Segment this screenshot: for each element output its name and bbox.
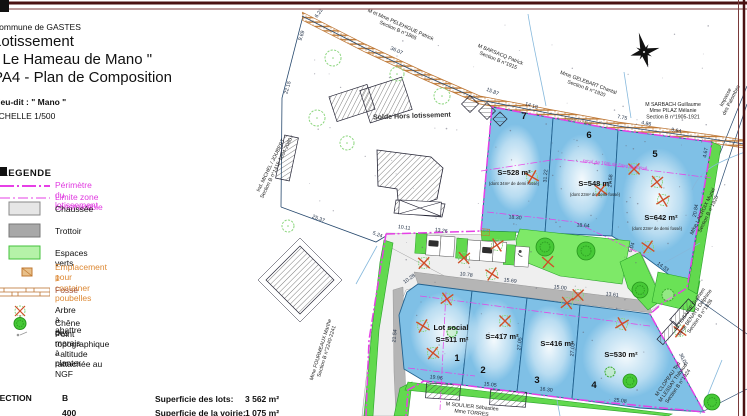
- topo-point: [626, 145, 627, 146]
- echelle-label: ECHELLE 1/500: [0, 111, 55, 121]
- topo-point: [590, 215, 591, 216]
- topo-point: [627, 221, 629, 223]
- lot-name: Lot social: [433, 323, 468, 332]
- topo-point: [314, 73, 315, 74]
- oak-to-plant-icon: [623, 374, 637, 388]
- container-swatch-icon: [0, 262, 50, 282]
- topo-point: [575, 286, 576, 287]
- topo-point: [716, 323, 717, 324]
- north-arrow-icon: [625, 29, 663, 72]
- section-label: SECTION: [0, 393, 32, 403]
- lot-number: 3: [534, 375, 539, 386]
- trash-container-spot: [481, 229, 489, 236]
- owner-label: Mme FOURMEAUX MartheSection B n°2240-224…: [309, 318, 339, 383]
- superficie-lots-value: 3 562 m²: [245, 394, 279, 404]
- topo-point: [396, 56, 397, 57]
- topo-point: [626, 212, 627, 213]
- terrace: [399, 200, 442, 216]
- topo-point: [314, 59, 315, 60]
- topo-point: [576, 160, 577, 161]
- topo-point: [622, 106, 623, 107]
- topo-point: [669, 348, 670, 349]
- oak-to-plant-icon: [577, 242, 595, 260]
- topo-point: [420, 301, 421, 302]
- topo-point: [473, 67, 474, 68]
- topo-point: [549, 218, 550, 219]
- topo-point: [495, 147, 496, 148]
- topo-point: [702, 139, 703, 140]
- topo-point: [530, 251, 532, 253]
- topo-point: [552, 44, 553, 45]
- topo-point: [405, 259, 406, 260]
- lot-number: 7: [521, 111, 526, 122]
- topo-point: [617, 238, 618, 239]
- lot-area: S=511 m²: [436, 335, 469, 344]
- topo-point: [597, 170, 598, 171]
- topo-point: [469, 267, 470, 268]
- superficie-voirie-value: 1 075 m²: [245, 408, 279, 416]
- topo-point: [458, 238, 459, 239]
- topo-point: [701, 192, 702, 193]
- lot-area: S=642 m²: [644, 213, 678, 222]
- topo-point: [558, 151, 559, 152]
- topo-point: [481, 313, 482, 314]
- lot-number: 5: [652, 149, 658, 160]
- solde-hors-lotissement-label: Solde Hors lotissement: [373, 112, 452, 122]
- topo-point: [536, 287, 537, 288]
- owner-label: M SARBACH GuillaumeMme PILAZ MélanieSect…: [645, 102, 701, 120]
- topo-point: [392, 63, 393, 64]
- topo-point: [478, 203, 479, 204]
- parked-car: [482, 247, 492, 254]
- topo-point: [624, 257, 625, 258]
- topo-point: [636, 389, 638, 391]
- point-topo-icon: [0, 329, 50, 341]
- topo-point: [601, 121, 602, 122]
- shrub-icon: [662, 289, 674, 301]
- legend-row-container: Emplacement pour 1 container poubelles: [0, 262, 50, 284]
- dimension-label: 7.75: [617, 114, 628, 122]
- lieu-dit-label: Lieu-dit : " Mano ": [0, 97, 66, 107]
- topo-point: [668, 339, 669, 340]
- topo-point: [317, 128, 318, 129]
- owner-label: M BARSACQ PatrickSection B n°1915: [474, 43, 524, 73]
- topo-point: [389, 77, 391, 79]
- topo-point: [705, 124, 706, 125]
- topo-point: [604, 400, 605, 401]
- topo-point: [422, 247, 424, 249]
- topo-point: [510, 130, 511, 131]
- topo-point: [552, 143, 553, 144]
- topo-point: [560, 166, 561, 167]
- topo-point: [662, 78, 663, 79]
- superficie-lots-label: Superficie des lots:: [155, 394, 233, 404]
- topo-point: [701, 141, 702, 142]
- topo-point: [677, 309, 679, 311]
- lot-area: S=417 m²: [485, 332, 519, 341]
- chaussee-swatch-icon: [0, 201, 50, 217]
- topo-point: [576, 140, 577, 141]
- topo-point: [637, 203, 639, 205]
- owner-label: M et Mme PELEHIGUE PatrickSection B n°18…: [364, 8, 435, 48]
- topo-point: [592, 340, 593, 341]
- legend-label: Point topographique - altitude rattachée…: [55, 329, 109, 379]
- topo-point: [402, 40, 404, 42]
- parked-car: [428, 240, 438, 247]
- oak-to-plant-icon: [536, 238, 554, 256]
- topo-point: [528, 201, 529, 202]
- topo-point: [365, 156, 366, 157]
- topo-point: [329, 127, 330, 128]
- lot-number: 1: [454, 353, 460, 364]
- topo-point: [686, 215, 687, 216]
- topo-point: [609, 399, 610, 400]
- lot-note: (dont 23m² de demi fossé): [632, 226, 683, 231]
- topo-point: [585, 287, 586, 288]
- topo-point: [476, 95, 477, 96]
- dimension-label: 18.64: [576, 223, 589, 230]
- topo-point: [702, 68, 703, 69]
- topo-point: [413, 188, 414, 189]
- topo-point: [416, 315, 417, 316]
- topo-point: [321, 25, 322, 26]
- topo-point: [438, 45, 439, 46]
- dimension-label: 31.22: [543, 169, 550, 182]
- topo-point: [724, 184, 725, 185]
- topo-point: [627, 74, 628, 75]
- lot-area: S=530 m²: [604, 350, 638, 359]
- topo-point: [636, 123, 637, 124]
- topo-point: [309, 183, 310, 184]
- legend-row-perimetre: Périmètre du lotissement: [0, 182, 50, 192]
- dimension-label: 36.07: [389, 46, 403, 57]
- topo-point: [552, 175, 554, 177]
- topo-point: [681, 145, 682, 146]
- topo-point: [647, 65, 648, 66]
- topo-point: [574, 139, 575, 140]
- commune-label: Commune de GASTES: [0, 22, 81, 32]
- topo-point: [630, 197, 631, 198]
- topo-point: [555, 222, 557, 224]
- topo-point: [602, 154, 603, 155]
- topo-point: [614, 109, 615, 110]
- topo-point: [519, 50, 520, 51]
- topo-point: [707, 25, 709, 27]
- topo-point: [624, 299, 625, 300]
- lot-area: S=416 m²: [540, 339, 574, 348]
- legend-row-fosse: Fossé: [0, 287, 50, 299]
- topo-point: [396, 173, 397, 174]
- lot-note: (dont 23m² de demi fossé): [570, 192, 621, 197]
- topo-point: [513, 223, 514, 224]
- topo-point: [505, 25, 506, 26]
- legend-label: Trottoir: [55, 226, 82, 236]
- topo-point: [435, 217, 436, 218]
- topo-point: [567, 103, 568, 104]
- legend-row-chaussee: Chaussée: [0, 201, 50, 219]
- topo-point: [583, 332, 585, 334]
- topo-point: [663, 187, 664, 188]
- main-house: [377, 150, 443, 206]
- topo-point: [572, 68, 573, 69]
- topo-point: [518, 323, 519, 324]
- legend-label: Chaussée: [55, 204, 93, 214]
- topo-point: [643, 352, 644, 353]
- trottoir-swatch-icon: [0, 223, 50, 239]
- oak-to-plant-icon: [704, 394, 720, 410]
- topo-point: [679, 186, 680, 187]
- perimetre-swatch-icon: [0, 182, 50, 190]
- topo-point: [561, 188, 562, 189]
- dimension-label: 22.15: [283, 81, 292, 95]
- lot-number: 4: [591, 380, 597, 391]
- dimension-label: 27.58: [608, 174, 615, 187]
- topo-point: [444, 353, 445, 354]
- title-line-1: Lotissement: [0, 33, 74, 50]
- topo-point: [545, 123, 547, 125]
- dimension-label: 25.37: [311, 214, 325, 224]
- dimension-label: 18.30: [508, 215, 521, 222]
- legend-title: LEGENDE: [2, 168, 51, 179]
- topo-point: [674, 34, 675, 35]
- shrub-icon: [605, 367, 615, 377]
- lot-area: S=528 m²: [497, 168, 531, 177]
- topo-point: [626, 201, 627, 202]
- legend-row-point-topo: Point topographique - altitude rattachée…: [0, 329, 50, 343]
- topo-point: [578, 146, 579, 147]
- topo-point: [596, 218, 597, 219]
- topo-point: [636, 119, 637, 120]
- topo-point: [319, 200, 320, 201]
- superficie-voirie-label: Superficie de la voirie:: [155, 408, 246, 416]
- topo-point: [616, 308, 618, 310]
- legend-label: Fossé: [55, 285, 78, 295]
- lot-number: 6: [586, 130, 591, 141]
- topo-point: [561, 152, 562, 153]
- topo-point: [333, 210, 334, 211]
- topo-point: [375, 175, 376, 176]
- topo-point: [391, 160, 392, 161]
- corner-mark: [0, 0, 9, 12]
- title-line-2: " Le Hameau de Mano ": [0, 51, 152, 68]
- topo-point: [633, 148, 635, 150]
- lot-number: 2: [480, 365, 485, 376]
- dimension-label: 15.87: [485, 87, 499, 97]
- lot-note: (dont 34m² de demi fossé): [489, 181, 540, 186]
- topo-point: [648, 64, 649, 65]
- topo-point: [701, 280, 702, 281]
- espaces-verts-swatch-icon: [0, 245, 50, 261]
- legend-row-trottoir: Trottoir: [0, 223, 50, 241]
- fosse-swatch-icon: [0, 287, 50, 297]
- plan-sheet: 7 S=528 m² (dont 34m² de demi fossé) 6 S…: [0, 0, 747, 416]
- topo-point: [667, 243, 668, 244]
- topo-point: [291, 135, 292, 136]
- topo-point: [434, 282, 435, 283]
- oak-to-plant-icon: [632, 282, 648, 298]
- topo-point: [644, 141, 645, 142]
- topo-point: [703, 54, 704, 55]
- topo-point: [644, 294, 645, 295]
- topo-point: [618, 227, 619, 228]
- owner-label: Mme GELEBART ChantalSection B n°1920: [557, 70, 617, 102]
- topo-point: [559, 226, 560, 227]
- dimension-label: 10.11: [397, 224, 410, 232]
- topo-point: [712, 246, 713, 247]
- topo-point: [511, 159, 512, 160]
- topo-point: [446, 128, 448, 130]
- legend-row-espaces-verts: Espaces verts: [0, 245, 50, 263]
- topo-point: [456, 129, 457, 130]
- topo-point: [406, 242, 407, 243]
- topo-point: [340, 87, 341, 88]
- section-value: B: [62, 393, 68, 403]
- topo-point: [601, 378, 602, 379]
- topo-point: [516, 224, 517, 225]
- topo-point: [635, 262, 636, 263]
- dimension-label: 5.24: [372, 230, 384, 239]
- title-line-3: PA4 - Plan de Composition: [0, 69, 172, 86]
- topo-point: [438, 344, 439, 345]
- topo-point: [329, 73, 330, 74]
- topo-point: [434, 128, 435, 129]
- section-row2-fragment: 400: [62, 408, 76, 416]
